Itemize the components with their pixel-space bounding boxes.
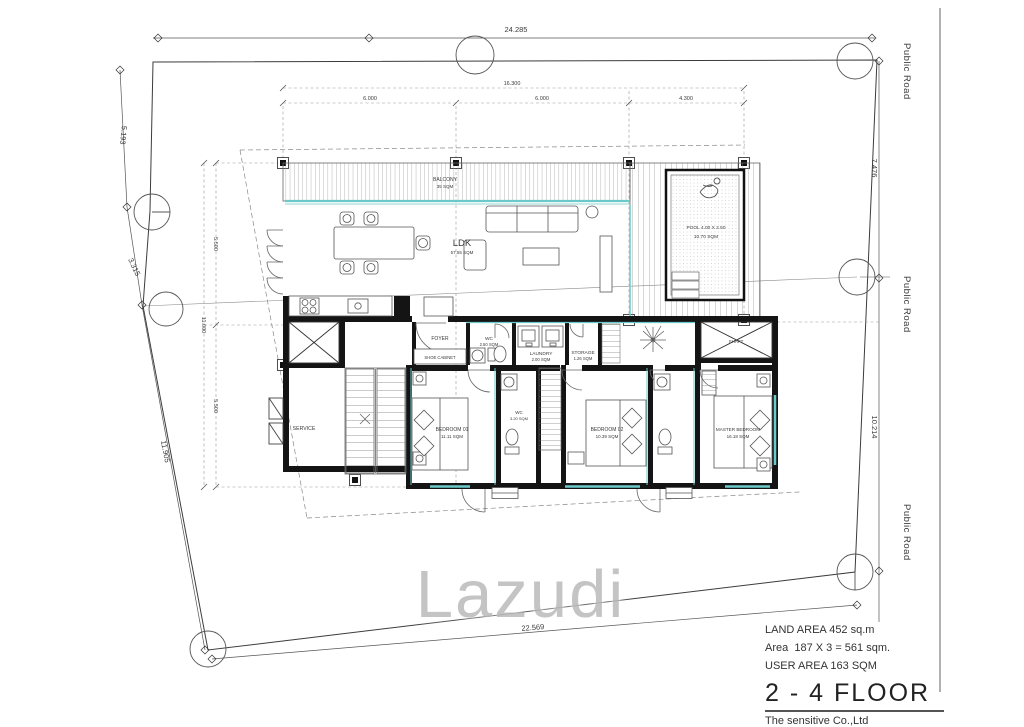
svg-text:FOYER: FOYER	[431, 336, 449, 342]
basin	[504, 377, 514, 387]
wardrobe	[539, 368, 561, 450]
ldk-louver-doors	[267, 230, 283, 294]
toilet-bowl	[659, 429, 671, 445]
svg-text:LDK: LDK	[453, 238, 472, 249]
toilet-bowl	[506, 429, 518, 445]
side-table	[586, 206, 598, 218]
floor-title: 2 - 4 FLOOR	[765, 679, 944, 712]
bedroom-1	[412, 372, 468, 470]
bath-2-fixtures	[654, 374, 672, 454]
master-bedroom	[702, 371, 772, 471]
svg-text:MASTER BEDROOM: MASTER BEDROOM	[716, 427, 760, 432]
sofa-set	[464, 206, 612, 292]
console-cabinet	[424, 297, 453, 316]
dining-set	[334, 212, 430, 274]
svg-text:11.11 SQM: 11.11 SQM	[441, 434, 463, 439]
toilet-tank	[658, 447, 672, 454]
room-label-wc: WC 2.50 SQM	[480, 336, 499, 347]
dim-top: 24.285	[505, 25, 528, 34]
dim-bottom: 22.569	[521, 622, 545, 633]
service-ac-units	[269, 398, 283, 444]
dim-left-upper: 5.193	[118, 125, 129, 144]
toilet-tank	[505, 447, 519, 454]
public-road-label-3: Public Road	[901, 496, 912, 568]
window-sills	[492, 488, 692, 499]
kitchen	[289, 296, 453, 316]
dim-left-mid: 3.315	[126, 257, 142, 278]
svg-text:35 SQM: 35 SQM	[437, 184, 454, 189]
room-label-ldk: LDK 57.55 SQM	[451, 238, 474, 255]
title-block: LAND AREA 452 sq.m Area 187 X 3 = 561 sq…	[765, 621, 1015, 727]
svg-text:WC: WC	[515, 410, 523, 415]
grid-left-seg-2: 5.500	[212, 399, 218, 413]
floor-plan-sheet: 24.285 22.569 5.193 3.315 11.905 7.476 1…	[0, 0, 1024, 727]
svg-text:2.00 SQM: 2.00 SQM	[532, 357, 551, 362]
yard-hatch	[602, 324, 620, 363]
svg-text:57.55 SQM: 57.55 SQM	[451, 250, 474, 255]
bedroom-2	[568, 400, 646, 466]
svg-text:1.26 SQM: 1.26 SQM	[574, 356, 593, 361]
svg-text:SHAFT: SHAFT	[729, 339, 744, 344]
svg-text:BEDROOM 01: BEDROOM 01	[436, 427, 469, 433]
room-label-storage: STORAGE 1.26 SQM	[571, 350, 594, 361]
wc-basin	[472, 350, 483, 361]
dim-left-lower: 11.905	[159, 440, 172, 464]
floor-plan-drawing: 24.285 22.569 5.193 3.315 11.905 7.476 1…	[0, 0, 1024, 727]
room-label-laundry: LAUNDRY 2.00 SQM	[530, 351, 554, 362]
room-label-shaft: SHAFT	[729, 339, 744, 344]
grid-left-overall: 11.000	[200, 317, 206, 333]
master-closet	[702, 371, 716, 395]
staircase	[345, 368, 406, 474]
dim-right-lower: 10.214	[870, 416, 879, 439]
wc-toilet-bowl	[494, 346, 506, 362]
public-road-label-2: Public Road	[901, 268, 912, 340]
laundry-machines	[518, 326, 563, 347]
grid-top-seg-2: 6.000	[535, 96, 549, 102]
company-name: The sensitive Co.,Ltd	[765, 715, 1015, 727]
svg-text:10.39 SQM: 10.39 SQM	[596, 434, 619, 439]
svg-text:2.50 SQM: 2.50 SQM	[480, 342, 499, 347]
elevator	[289, 322, 339, 363]
dim-right-upper: 7.476	[870, 159, 879, 178]
svg-text:16.18 SQM: 16.18 SQM	[727, 434, 750, 439]
user-area-text: USER AREA 163 SQM	[765, 657, 1015, 675]
tv-console	[600, 236, 612, 292]
grid-top-seg-1: 6.000	[363, 96, 377, 102]
public-road-label-1: Public Road	[901, 35, 912, 107]
svg-text:BEDROOM 02: BEDROOM 02	[591, 427, 624, 433]
pool-steps	[672, 272, 699, 298]
svg-text:3.20 SQM: 3.20 SQM	[510, 416, 528, 421]
land-area-text: LAND AREA 452 sq.m	[765, 621, 1015, 639]
wc-fixtures	[470, 346, 506, 363]
plant	[640, 326, 666, 352]
room-label-service: SERVICE	[293, 426, 316, 432]
grid-top-seg-3: 4.300	[679, 96, 693, 102]
site-boundary	[134, 8, 940, 692]
svg-text:BALCONY: BALCONY	[433, 177, 458, 183]
basin	[657, 377, 667, 387]
site-dimension-labels: 24.285 22.569 5.193 3.315 11.905 7.476 1…	[118, 25, 879, 633]
grid-top-overall: 16.300	[504, 81, 521, 87]
svg-text:SHOE CABINET: SHOE CABINET	[424, 355, 456, 360]
bed-2	[586, 400, 646, 466]
coffee-table	[523, 248, 559, 265]
desk	[568, 452, 584, 464]
area-calc-text: Area 187 X 3 = 561 sqm.	[765, 639, 1015, 657]
svg-text:POOL 4.00 X 2.50: POOL 4.00 X 2.50	[686, 225, 725, 231]
bed-master	[714, 396, 772, 468]
svg-text:10.70 SQM: 10.70 SQM	[694, 234, 718, 240]
svg-text:SERVICE: SERVICE	[293, 426, 316, 432]
grid-left-seg-1: 5.500	[212, 237, 218, 251]
room-label-bedroom-wc: WC 3.20 SQM	[510, 410, 528, 421]
